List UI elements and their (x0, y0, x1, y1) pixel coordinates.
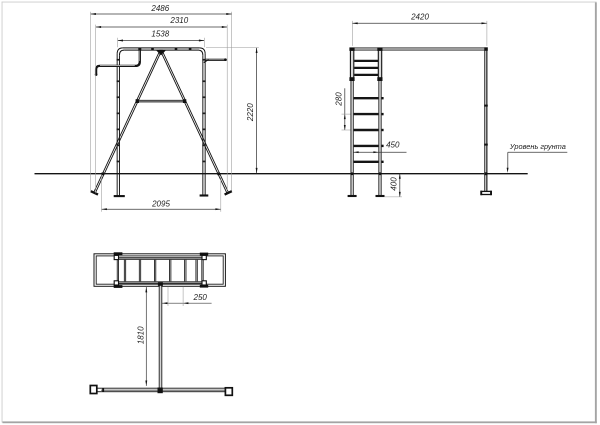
svg-text:2095: 2095 (151, 200, 170, 209)
svg-text:1810: 1810 (137, 326, 146, 344)
svg-text:2310: 2310 (169, 16, 188, 25)
svg-text:2420: 2420 (410, 13, 429, 22)
svg-text:1538: 1538 (151, 30, 169, 39)
svg-text:250: 250 (193, 293, 208, 302)
svg-text:2486: 2486 (150, 4, 169, 13)
svg-text:Уровень грунта: Уровень грунта (509, 142, 566, 151)
svg-text:450: 450 (386, 140, 400, 149)
svg-text:400: 400 (390, 177, 399, 191)
svg-text:280: 280 (335, 92, 344, 107)
svg-text:2220: 2220 (246, 103, 255, 122)
